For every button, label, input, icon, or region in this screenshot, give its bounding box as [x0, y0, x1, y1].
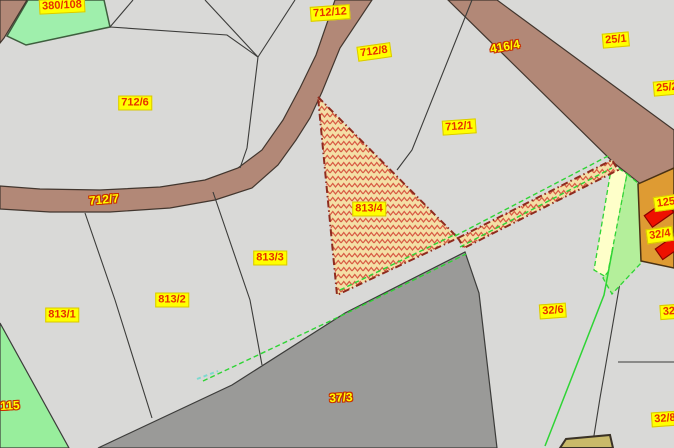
parcel-label-32[interactable]: 32: [659, 304, 674, 320]
parcel-label-32-6[interactable]: 32/6: [539, 303, 567, 320]
map-viewport[interactable]: 380/108712/12712/8416/425/125/2712/6712/…: [0, 0, 674, 448]
parcel-label-115[interactable]: 115: [0, 399, 20, 413]
parcel-label-32-8[interactable]: 32/8: [651, 411, 674, 428]
parcel-label-712-6[interactable]: 712/6: [118, 96, 152, 111]
parcel-label-380-108[interactable]: 380/108: [39, 0, 85, 15]
parcel-label-25-1[interactable]: 25/1: [602, 31, 631, 48]
parcel-label-712-12[interactable]: 712/12: [310, 4, 351, 22]
map-canvas[interactable]: [0, 0, 674, 448]
parcel-label-25-2[interactable]: 25/2: [653, 79, 674, 96]
parcel-label-813-3[interactable]: 813/3: [253, 251, 287, 266]
parcel-label-712-1[interactable]: 712/1: [442, 118, 476, 135]
parcel-label-125[interactable]: 125: [653, 194, 674, 212]
parcel-label-712-7[interactable]: 712/7: [88, 192, 119, 208]
parcel-label-813-2[interactable]: 813/2: [155, 293, 189, 308]
parcel-label-813-4[interactable]: 813/4: [352, 202, 386, 217]
parcel-label-37-3[interactable]: 37/3: [329, 391, 353, 405]
parcel-label-813-1[interactable]: 813/1: [45, 308, 79, 323]
